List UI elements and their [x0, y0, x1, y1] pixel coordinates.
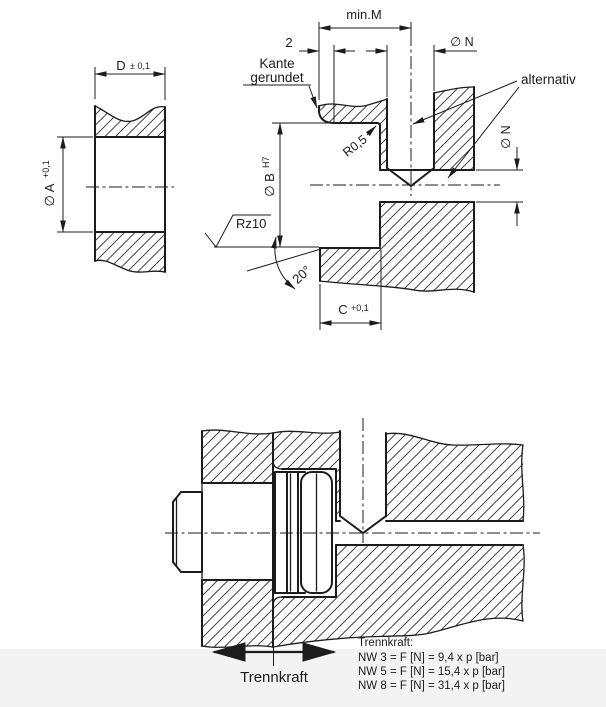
extension-lines-D: [95, 67, 165, 100]
dim-label-N-side-group: ∅ N: [499, 125, 513, 148]
dim-label-D: D: [116, 58, 125, 73]
technical-drawing-page: D ± 0,1 ∅ A +0,1 min.M 2: [0, 0, 606, 707]
dim-tol-D: ± 0,1: [130, 61, 150, 71]
alternative-label: alternativ: [521, 72, 576, 87]
formula-nw3: NW 3 = F [N] = 9,4 x p [bar]: [358, 652, 499, 664]
dim-tol-B: H7: [261, 156, 271, 168]
dim-tol-A: +0,1: [41, 160, 51, 178]
dim-label-A: ∅ A: [42, 183, 57, 206]
plate-hatch-upper: [202, 430, 273, 483]
angle-ray: [247, 249, 321, 271]
dim-label-2: 2: [285, 35, 292, 50]
surface-finish-symbol: Rz10: [205, 215, 271, 247]
dim-tol-C: +0,1: [351, 303, 369, 313]
extension-lines-N-side: [476, 170, 523, 202]
hatch-upper-left: [319, 99, 387, 170]
left-view-bushing-section: D ± 0,1 ∅ A +0,1: [41, 58, 174, 272]
channel-edges: [380, 170, 474, 202]
dim-label-B: ∅ B: [262, 173, 277, 197]
formula-nw8: NW 8 = F [N] = 31,4 x p [bar]: [358, 680, 505, 692]
radius-leader: [367, 126, 376, 135]
radius-label: R0,5: [340, 132, 369, 159]
drawing-canvas: D ± 0,1 ∅ A +0,1 min.M 2: [0, 0, 606, 707]
plate-hole-walls: [203, 483, 273, 580]
radius-callout: R0,5: [340, 126, 376, 160]
dim-label-C: C: [338, 302, 347, 317]
dim-label-minM: min.M: [346, 7, 381, 22]
note-edge-line2: gerundet: [250, 70, 304, 85]
force-label: Trennkraft: [240, 669, 309, 686]
note-leader: [309, 86, 317, 108]
extension-lines-A: [57, 137, 93, 232]
extension-lines-minM: [319, 22, 411, 100]
angle-label: 20°: [289, 262, 314, 286]
hatch-lower: [95, 232, 165, 272]
hatch-upper-right: [434, 87, 474, 170]
note-rounded-edge: Kante gerundet: [243, 56, 317, 108]
surface-label: Rz10: [236, 216, 266, 231]
dim-label-A-group: ∅ A +0,1: [41, 160, 57, 206]
dim-label-N-side: ∅ N: [499, 125, 513, 148]
formula-nw5: NW 5 = F [N] = 15,4 x p [bar]: [358, 666, 505, 678]
block-hatch-upper-right: [386, 433, 523, 521]
dim-label-N-top: ∅ N: [450, 35, 473, 49]
nipple-cap: [173, 492, 202, 572]
formula-title: Trennkraft:: [358, 637, 413, 649]
note-edge-line1: Kante: [259, 56, 294, 71]
plate-hatch-lower: [202, 580, 273, 647]
detail-view-installation-bore: min.M 2 ∅ N ∅ B H7 C +0,1 20° Rz10: [205, 7, 576, 330]
dim-label-B-group: ∅ B H7: [261, 156, 277, 196]
angle-arc: [275, 237, 295, 289]
angle-label-group: 20°: [289, 262, 314, 286]
